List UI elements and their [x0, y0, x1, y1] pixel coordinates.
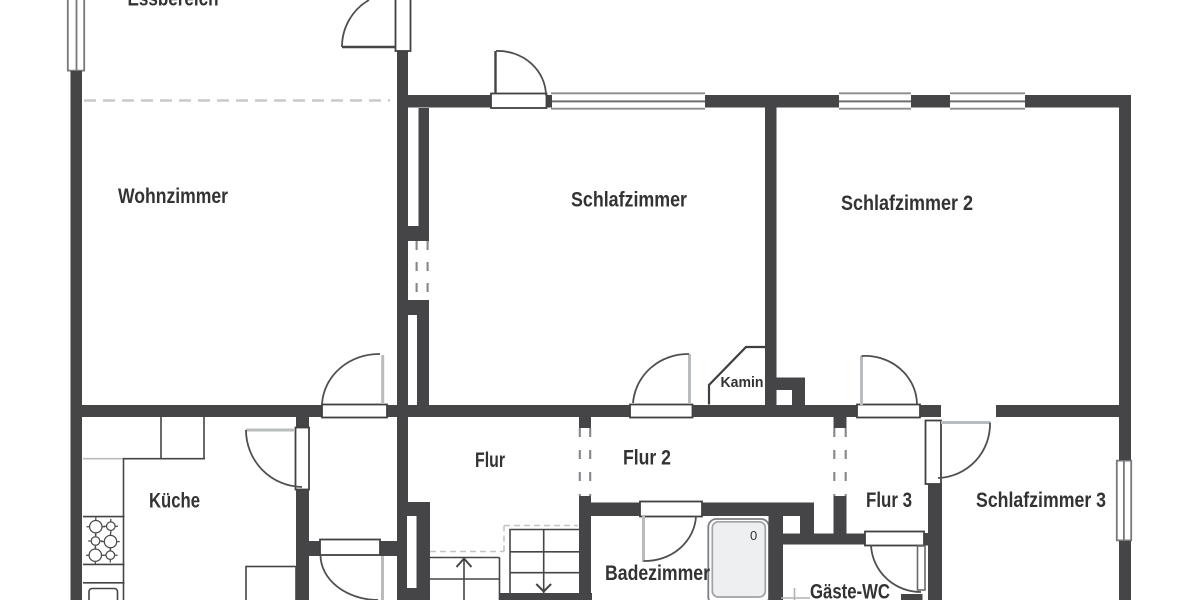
svg-text:Wohnzimmer: Wohnzimmer [118, 185, 228, 208]
svg-text:Küche: Küche [149, 490, 200, 513]
svg-text:Flur: Flur [475, 449, 505, 472]
svg-text:Schlafzimmer: Schlafzimmer [571, 189, 687, 212]
svg-text:0: 0 [750, 528, 757, 543]
svg-text:Flur 2: Flur 2 [623, 447, 671, 470]
svg-text:Essbereich: Essbereich [128, 0, 219, 11]
svg-text:Badezimmer: Badezimmer [605, 562, 710, 585]
svg-text:Schlafzimmer 2: Schlafzimmer 2 [841, 192, 973, 215]
svg-text:Kamin: Kamin [721, 374, 764, 391]
svg-text:Gäste-WC: Gäste-WC [810, 581, 890, 600]
svg-text:Schlafzimmer 3: Schlafzimmer 3 [976, 489, 1106, 512]
svg-text:Flur 3: Flur 3 [866, 489, 912, 512]
